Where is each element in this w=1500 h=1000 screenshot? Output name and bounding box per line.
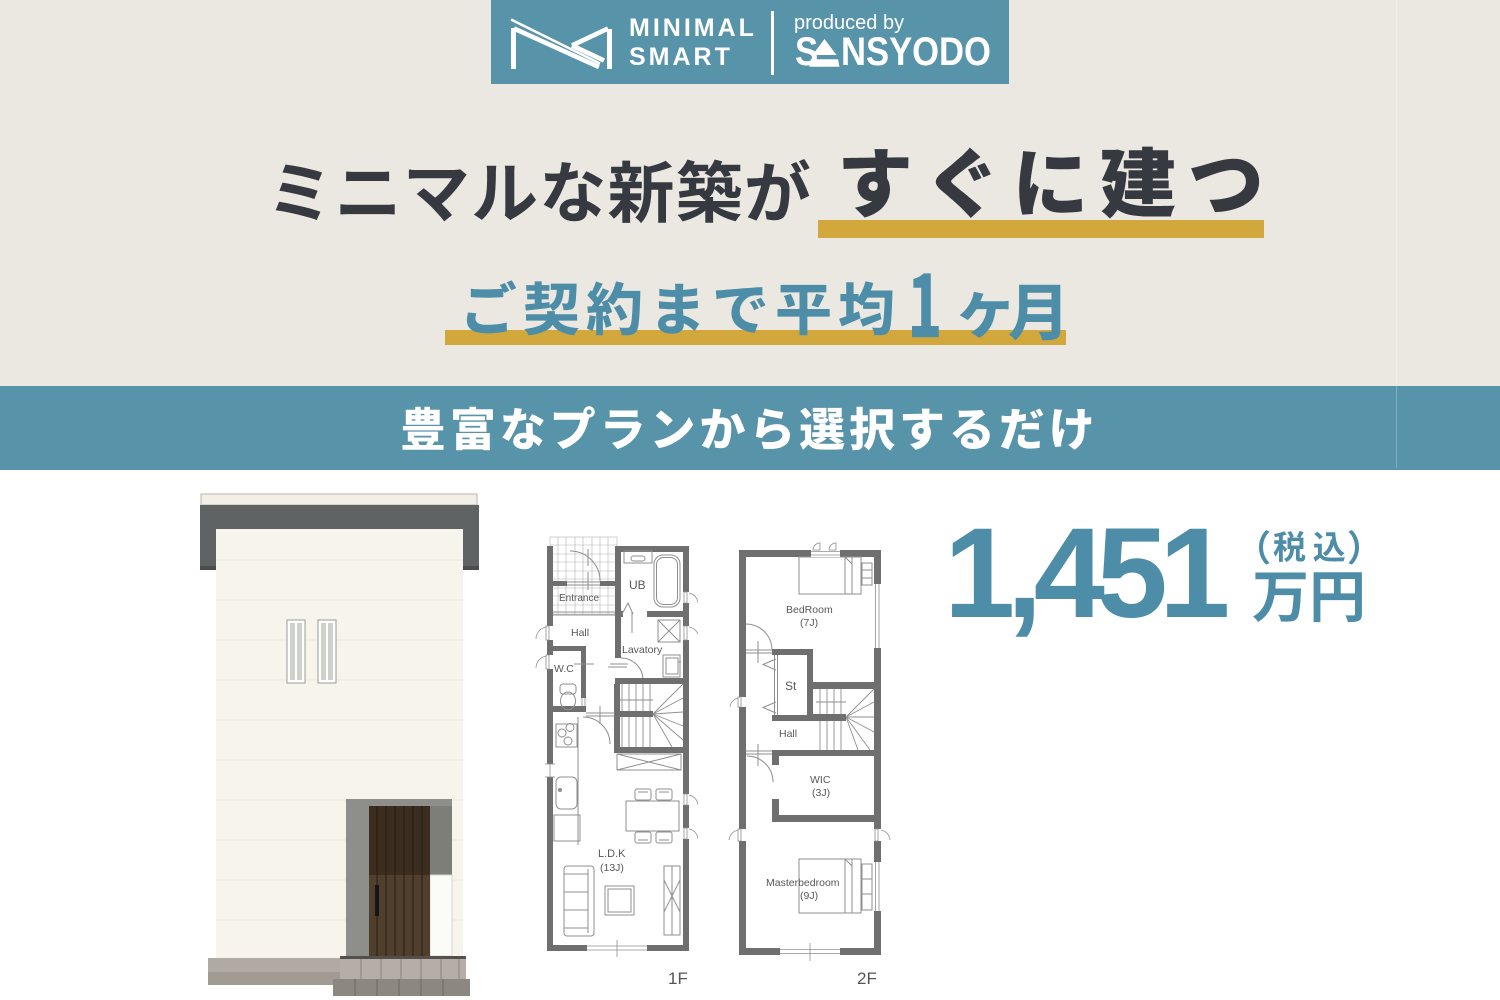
svg-text:Entrance: Entrance bbox=[559, 593, 599, 604]
svg-text:St: St bbox=[785, 679, 797, 693]
svg-text:W.C: W.C bbox=[554, 663, 574, 675]
svg-text:(13J): (13J) bbox=[600, 862, 624, 874]
svg-text:2F: 2F bbox=[857, 969, 877, 988]
svg-text:BedRoom: BedRoom bbox=[786, 604, 833, 616]
svg-text:L.D.K: L.D.K bbox=[598, 848, 626, 860]
svg-text:(9J): (9J) bbox=[800, 890, 818, 902]
svg-text:Hall: Hall bbox=[571, 627, 589, 639]
svg-text:UB: UB bbox=[629, 578, 646, 592]
svg-text:1F: 1F bbox=[668, 969, 688, 988]
svg-text:Lavatory: Lavatory bbox=[622, 644, 663, 656]
svg-text:WIC: WIC bbox=[810, 774, 831, 786]
svg-text:Masterbedroom: Masterbedroom bbox=[766, 877, 840, 889]
svg-text:(7J): (7J) bbox=[800, 617, 818, 629]
svg-text:(3J): (3J) bbox=[812, 787, 830, 799]
svg-text:Hall: Hall bbox=[779, 728, 797, 740]
